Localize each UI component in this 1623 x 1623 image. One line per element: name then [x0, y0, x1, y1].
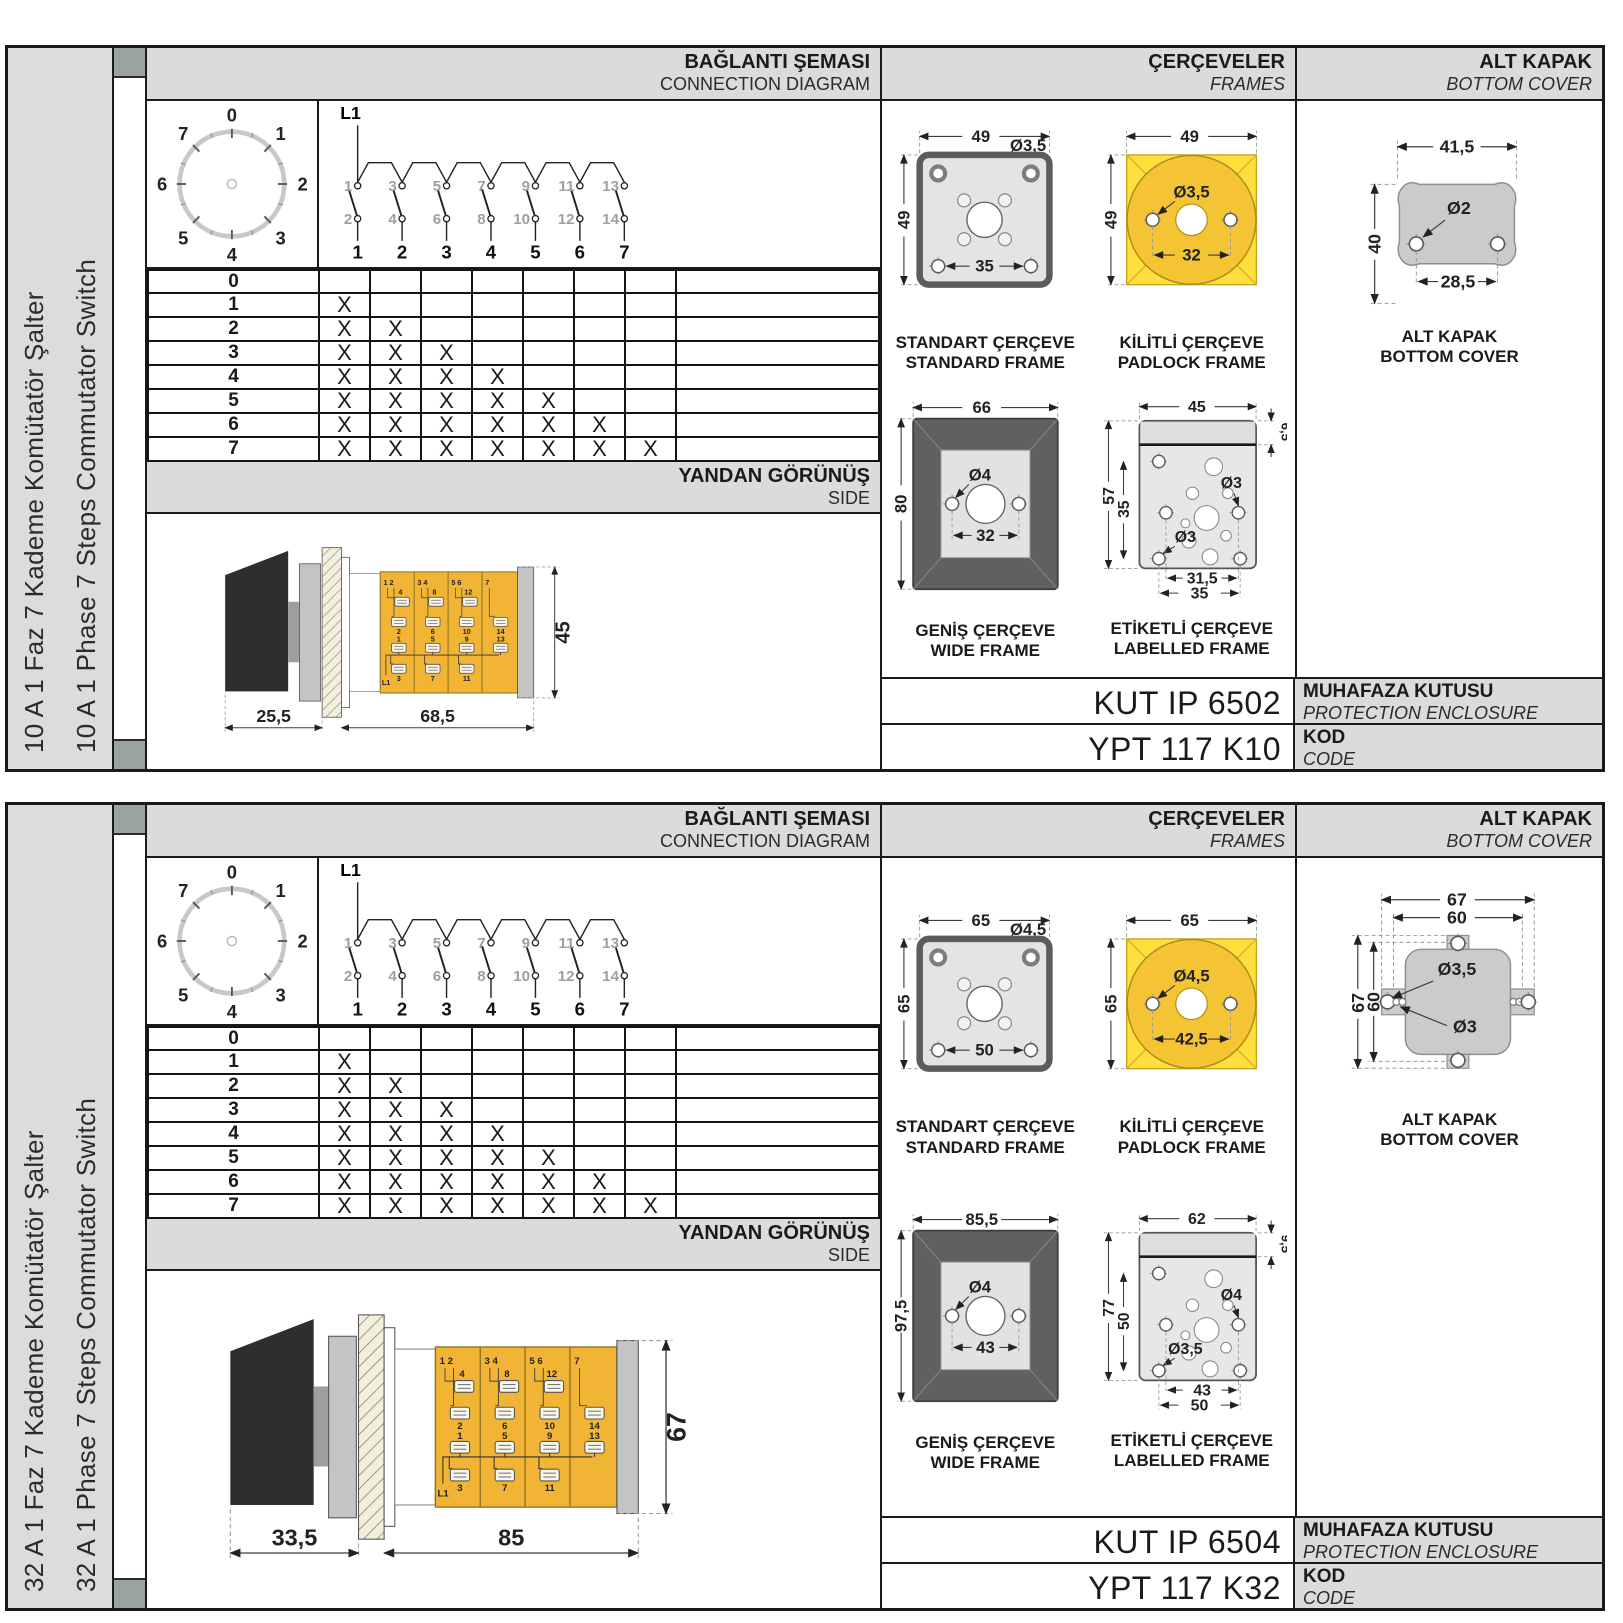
svg-text:80: 80: [892, 495, 911, 514]
dial-position-label: 4: [226, 1001, 237, 1020]
labelled-frame-figure: 62 9,5 77 50: [1097, 1201, 1287, 1474]
knob: [230, 1319, 313, 1505]
steps-table-row: 1X: [148, 293, 879, 317]
dial-position-label: 1: [275, 880, 285, 901]
binder-strip: [114, 48, 147, 769]
svg-text:6: 6: [433, 211, 441, 228]
bottom-cover-panel: ALT KAPAK BOTTOM COVER 41,5 40: [1297, 48, 1602, 677]
steps-table-row: 7XXXXXXX: [148, 1194, 879, 1218]
catalog-page: 10 A 1 Faz 7 Kademe Komütatör Şalter 10 …: [0, 0, 1623, 1611]
product-section: 32 A 1 Faz 7 Kademe Komütatör Şalter 32 …: [5, 802, 1605, 1611]
frames-header-english: FRAMES: [892, 74, 1285, 95]
wide-frame-caption: GENİŞ ÇERÇEVE WIDE FRAME: [915, 621, 1055, 662]
svg-text:11: 11: [545, 1483, 556, 1494]
dial-position-label: 1: [275, 123, 285, 144]
connection-header-turkish: BAĞLANTI ŞEMASI: [157, 51, 870, 74]
svg-text:4: 4: [486, 998, 497, 1019]
dial-position-label: 6: [157, 173, 167, 194]
svg-text:50: 50: [976, 1041, 995, 1060]
svg-text:3: 3: [441, 241, 451, 262]
right-panel: ÇERÇEVELER FRAMES 49 Ø3,5: [882, 48, 1602, 769]
product-sidebar: 10 A 1 Faz 7 Kademe Komütatör Şalter 10 …: [8, 48, 114, 769]
svg-text:3: 3: [441, 998, 451, 1019]
dial-position-label: 0: [226, 862, 236, 883]
standard-frame-svg: 65 Ø4,5 65: [890, 900, 1080, 1115]
svg-text:7: 7: [477, 178, 485, 195]
svg-text:45: 45: [1188, 399, 1206, 416]
cover-header-turkish: ALT KAPAK: [1307, 51, 1592, 74]
steps-table-row: 5XXXXX: [148, 1146, 879, 1170]
svg-text:49: 49: [895, 211, 914, 230]
svg-text:41,5: 41,5: [1439, 136, 1474, 156]
diagram-top-row: 0 1 2 3 4 5 6 7 L1: [147, 858, 880, 1026]
bottom-cover-figure: 67 60 67 60: [1297, 858, 1602, 1516]
frames-header: ÇERÇEVELER FRAMES: [882, 805, 1295, 858]
side-header-english: SIDE: [157, 1245, 870, 1266]
connection-diagram-panel: BAĞLANTI ŞEMASI CONNECTION DIAGRAM: [147, 48, 882, 769]
svg-text:14: 14: [602, 211, 619, 228]
side-header-turkish: YANDAN GÖRÜNÜŞ: [157, 465, 870, 488]
front-plate: [329, 1336, 357, 1518]
wide-frame-figure: 85,5 97,5: [890, 1201, 1080, 1474]
svg-text:1: 1: [352, 998, 362, 1019]
svg-text:1: 1: [457, 1431, 463, 1442]
dim-front: 25,5: [256, 706, 291, 726]
product-section: 10 A 1 Faz 7 Kademe Komütatör Şalter 10 …: [5, 45, 1605, 772]
svg-text:4: 4: [486, 241, 497, 262]
labelled-frame-svg: 45 6,5 57 35: [1097, 389, 1287, 617]
side-view-figure: 1 2 3 4 5 6 7 4 8 12 2 6 10 14 1 5 9: [147, 1271, 880, 1608]
dial-position-label: 2: [297, 930, 307, 951]
cover-header-english: BOTTOM COVER: [1307, 831, 1592, 852]
product-code-row: YPT 117 K32 KOD CODE: [882, 1562, 1602, 1608]
dial-position-label: 2: [297, 173, 307, 194]
svg-text:1: 1: [397, 634, 401, 643]
product-code: YPT 117 K10: [882, 725, 1295, 769]
svg-text:Ø3: Ø3: [1220, 475, 1241, 492]
frames-grid: 65 Ø4,5 65: [882, 858, 1295, 1516]
frames-header-turkish: ÇERÇEVELER: [892, 51, 1285, 74]
side-view-figure: 1 2 3 4 5 6 7 4 8 12 2 6 10 14 1 5 9: [147, 514, 880, 769]
contact-diagram-figure: L1: [319, 858, 880, 1024]
svg-text:8: 8: [504, 1369, 510, 1380]
steps-table-row: 6XXXXXX: [148, 1170, 879, 1194]
svg-text:97,5: 97,5: [892, 1299, 911, 1331]
cover-header: ALT KAPAK BOTTOM COVER: [1297, 805, 1602, 858]
svg-text:3 4: 3 4: [417, 577, 427, 586]
svg-text:5 6: 5 6: [529, 1356, 542, 1367]
wide-frame-figure: 66 80: [890, 389, 1080, 662]
contacts-svg: L1: [331, 861, 678, 1021]
bottom-cover-figure: 41,5 40 Ø2 28,5: [1297, 101, 1602, 677]
section-main: BAĞLANTI ŞEMASI CONNECTION DIAGRAM: [147, 48, 1602, 769]
steps-table: 01X2XX3XXX4XXXX5XXXXX6XXXXXX7XXXXXXX: [147, 1026, 880, 1219]
knob: [225, 550, 288, 691]
svg-text:10: 10: [513, 211, 530, 228]
svg-text:4: 4: [388, 211, 397, 228]
cover-header-english: BOTTOM COVER: [1307, 74, 1592, 95]
svg-text:6: 6: [433, 968, 441, 985]
end-cap: [617, 1340, 638, 1513]
frames-panel: ÇERÇEVELER FRAMES 65 Ø4,5: [882, 805, 1297, 1516]
padlock-frame-figure: 49 49: [1097, 116, 1287, 374]
svg-text:13: 13: [602, 178, 619, 195]
connection-header-turkish: BAĞLANTI ŞEMASI: [157, 808, 870, 831]
shaft: [384, 1328, 395, 1527]
dim-front: 33,5: [272, 1524, 318, 1550]
svg-text:13: 13: [602, 935, 619, 952]
svg-text:1: 1: [344, 935, 352, 952]
svg-text:66: 66: [973, 398, 992, 417]
product-title-turkish: 10 A 1 Faz 7 Kademe Komütatör Şalter: [8, 48, 60, 769]
dial-position-label: 0: [226, 105, 236, 126]
steps-table-row: 2XX: [148, 1074, 879, 1098]
labelled-frame-figure: 45 6,5 57 35: [1097, 389, 1287, 662]
svg-text:6,5: 6,5: [1278, 423, 1286, 441]
svg-text:50: 50: [1190, 1397, 1208, 1414]
svg-text:49: 49: [1101, 211, 1120, 230]
bottom-cover-caption: ALT KAPAK BOTTOM COVER: [1380, 1110, 1519, 1151]
steps-table: 01X2XX3XXX4XXXX5XXXXX6XXXXXX7XXXXXXX: [147, 269, 880, 462]
svg-text:9: 9: [465, 634, 469, 643]
svg-text:11: 11: [463, 673, 471, 682]
steps-table-row: 3XXX: [148, 1098, 879, 1122]
svg-text:10: 10: [513, 968, 530, 985]
svg-text:7: 7: [485, 577, 489, 586]
svg-text:65: 65: [972, 911, 991, 930]
padlock-frame-figure: 65 65: [1097, 900, 1287, 1158]
svg-text:65: 65: [1101, 995, 1120, 1014]
contact-diagram-figure: L1: [319, 101, 880, 267]
side-header-english: SIDE: [157, 488, 870, 509]
svg-text:42,5: 42,5: [1175, 1030, 1207, 1049]
output-labels: 1 2 3 4 5 6 7: [352, 998, 629, 1019]
dial-svg: 0 1 2 3 4 5 6 7: [152, 105, 313, 263]
side-view-header: YANDAN GÖRÜNÜŞ SIDE: [147, 462, 880, 515]
enclosure-code: KUT IP 6502: [882, 679, 1295, 723]
input-terminal-label: L1: [340, 861, 361, 880]
svg-text:32: 32: [976, 526, 995, 545]
standard-frame-figure: 49 Ø3,5 49: [890, 116, 1080, 374]
svg-text:8: 8: [477, 968, 485, 985]
svg-text:8: 8: [432, 587, 436, 596]
svg-text:49: 49: [1180, 127, 1199, 146]
svg-text:35: 35: [1190, 586, 1208, 603]
wide-frame-caption: GENİŞ ÇERÇEVE WIDE FRAME: [915, 1433, 1055, 1474]
svg-text:8: 8: [477, 211, 485, 228]
svg-text:13: 13: [497, 634, 505, 643]
svg-text:3: 3: [397, 673, 401, 682]
svg-text:Ø4,5: Ø4,5: [1173, 967, 1209, 986]
wide-frame-svg: 66 80: [890, 389, 1080, 619]
knob-hub: [314, 1386, 329, 1466]
steps-table-row: 7XXXXXXX: [148, 437, 879, 461]
svg-text:3 4: 3 4: [485, 1356, 499, 1367]
spacer: [350, 573, 381, 691]
svg-text:7: 7: [431, 673, 435, 682]
svg-text:1: 1: [352, 241, 362, 262]
panel-plate: [322, 547, 341, 717]
svg-text:9: 9: [522, 178, 530, 195]
svg-text:L1: L1: [438, 1488, 450, 1499]
end-cap: [518, 567, 534, 698]
bus-wire: [358, 919, 625, 939]
standard-frame-figure: 65 Ø4,5 65: [890, 900, 1080, 1158]
dial-position-label: 7: [178, 123, 188, 144]
binder-tab-bottom: [114, 739, 145, 769]
svg-text:43: 43: [976, 1338, 995, 1357]
side-view-svg: 1 2 3 4 5 6 7 4 8 12 2 6 10 14 1 5 9: [209, 525, 572, 759]
svg-text:35: 35: [976, 257, 995, 276]
product-title-english: 10 A 1 Phase 7 Steps Commutator Switch: [60, 48, 112, 769]
steps-table-row: 4XXXX: [148, 1122, 879, 1146]
connection-header-english: CONNECTION DIAGRAM: [157, 74, 870, 95]
svg-text:11: 11: [559, 935, 575, 952]
svg-text:62: 62: [1188, 1211, 1206, 1228]
svg-text:12: 12: [464, 587, 472, 596]
side-header-turkish: YANDAN GÖRÜNÜŞ: [157, 1222, 870, 1245]
svg-text:12: 12: [558, 211, 575, 228]
svg-text:7: 7: [574, 1356, 579, 1367]
svg-text:4: 4: [398, 587, 402, 596]
svg-text:13: 13: [589, 1431, 600, 1442]
dial-position-label: 7: [178, 880, 188, 901]
product-code-row: YPT 117 K10 KOD CODE: [882, 723, 1602, 769]
side-view-header: YANDAN GÖRÜNÜŞ SIDE: [147, 1219, 880, 1272]
svg-text:32: 32: [1182, 246, 1201, 265]
switch-body: 1 2 3 4 5 6 7 4 8 12 2 6 10 14 1 5 9: [435, 1347, 617, 1507]
connection-header-english: CONNECTION DIAGRAM: [157, 831, 870, 852]
svg-text:7: 7: [502, 1483, 507, 1494]
output-labels: 1 2 3 4 5 6 7: [352, 241, 629, 262]
binder-tab-top: [114, 805, 145, 835]
svg-text:65: 65: [1180, 911, 1199, 930]
steps-table-row: 3XXX: [148, 341, 879, 365]
dial-position-label: 3: [275, 227, 285, 248]
svg-text:12: 12: [546, 1369, 557, 1380]
svg-text:5: 5: [431, 634, 435, 643]
steps-table-row: 2XX: [148, 317, 879, 341]
enclosure-code-row: KUT IP 6502 MUHAFAZA KUTUSU PROTECTION E…: [882, 677, 1602, 723]
cover-header: ALT KAPAK BOTTOM COVER: [1297, 48, 1602, 101]
steps-table-row: 6XXXXXX: [148, 413, 879, 437]
svg-text:5: 5: [502, 1431, 508, 1442]
svg-text:Ø3: Ø3: [1175, 529, 1196, 546]
dim-length: 68,5: [420, 706, 455, 726]
dim-height: 45: [552, 621, 572, 643]
enclosure-code-label: MUHAFAZA KUTUSU PROTECTION ENCLOSURE: [1295, 1518, 1602, 1562]
bottom-cover-tabs-svg: 67 60 67 60: [1336, 872, 1564, 1108]
product-title-english: 32 A 1 Phase 7 Steps Commutator Switch: [60, 805, 112, 1608]
svg-text:7: 7: [619, 998, 629, 1019]
right-panel: ÇERÇEVELER FRAMES 65 Ø4,5: [882, 805, 1602, 1608]
steps-table-row: 5XXXXX: [148, 389, 879, 413]
knob-hub: [288, 601, 299, 662]
enclosure-code-row: KUT IP 6504 MUHAFAZA KUTUSU PROTECTION E…: [882, 1516, 1602, 1562]
svg-text:2: 2: [397, 241, 407, 262]
svg-text:40: 40: [1364, 234, 1384, 254]
svg-text:4: 4: [388, 968, 397, 985]
frames-grid: 49 Ø3,5 49: [882, 101, 1295, 677]
svg-text:12: 12: [558, 968, 575, 985]
product-sidebar: 32 A 1 Faz 7 Kademe Komütatör Şalter 32 …: [8, 805, 114, 1608]
cover-header-turkish: ALT KAPAK: [1307, 808, 1592, 831]
rotary-dial-figure: 0 1 2 3 4 5 6 7: [147, 101, 319, 267]
svg-text:9,5: 9,5: [1278, 1234, 1286, 1252]
svg-text:85,5: 85,5: [966, 1210, 998, 1229]
svg-text:9: 9: [522, 935, 530, 952]
svg-text:35: 35: [1116, 500, 1133, 518]
frames-header-english: FRAMES: [892, 831, 1285, 852]
spacer: [395, 1349, 436, 1505]
svg-text:7: 7: [619, 241, 629, 262]
svg-text:Ø3,5: Ø3,5: [1437, 959, 1476, 979]
wide-frame-svg: 85,5 97,5: [890, 1201, 1080, 1431]
bottom-cover-panel: ALT KAPAK BOTTOM COVER: [1297, 805, 1602, 1516]
svg-text:50: 50: [1116, 1312, 1133, 1330]
svg-text:2: 2: [397, 998, 407, 1019]
dial-position-label: 3: [275, 984, 285, 1005]
svg-text:6: 6: [575, 241, 585, 262]
labelled-frame-caption: ETİKETLİ ÇERÇEVE LABELLED FRAME: [1111, 619, 1273, 660]
frames-header-turkish: ÇERÇEVELER: [892, 808, 1285, 831]
front-plate: [299, 563, 320, 700]
svg-text:11: 11: [559, 178, 575, 195]
svg-text:5: 5: [433, 178, 441, 195]
dial-position-label: 4: [226, 244, 237, 263]
binder-strip: [114, 805, 147, 1608]
svg-text:5 6: 5 6: [451, 577, 461, 586]
svg-text:Ø4: Ø4: [969, 466, 992, 485]
steps-table-row: 4XXXX: [148, 365, 879, 389]
dim-height: 67: [661, 1412, 689, 1442]
steps-table-row: 1X: [148, 1050, 879, 1074]
svg-text:9: 9: [547, 1431, 552, 1442]
padlock-frame-svg: 65 65: [1097, 900, 1287, 1115]
bottom-cover-caption: ALT KAPAK BOTTOM COVER: [1380, 327, 1519, 368]
svg-text:Ø3: Ø3: [1452, 1016, 1476, 1036]
binder-tab-top: [114, 48, 145, 78]
svg-text:2: 2: [344, 968, 352, 985]
dial-svg: 0 1 2 3 4 5 6 7: [152, 862, 313, 1020]
svg-text:Ø3,5: Ø3,5: [1173, 183, 1209, 202]
frames-panel: ÇERÇEVELER FRAMES 49 Ø3,5: [882, 48, 1297, 677]
binder-tab-bottom: [114, 1578, 145, 1608]
product-code-label: KOD CODE: [1295, 725, 1602, 769]
svg-text:65: 65: [895, 995, 914, 1014]
connection-header: BAĞLANTI ŞEMASI CONNECTION DIAGRAM: [147, 805, 880, 858]
svg-text:60: 60: [1447, 907, 1467, 927]
svg-text:Ø2: Ø2: [1447, 198, 1471, 218]
switch-body: 1 2 3 4 5 6 7 4 8 12 2 6 10 14 1 5 9: [380, 571, 517, 692]
dial-position-label: 5: [178, 227, 188, 248]
product-code: YPT 117 K32: [882, 1564, 1295, 1608]
padlock-frame-caption: KİLİTLİ ÇERÇEVE PADLOCK FRAME: [1118, 1117, 1266, 1158]
svg-text:7: 7: [477, 935, 485, 952]
labelled-frame-caption: ETİKETLİ ÇERÇEVE LABELLED FRAME: [1111, 1431, 1273, 1472]
bus-wire: [358, 162, 625, 182]
labelled-frame-svg: 62 9,5 77 50: [1097, 1201, 1287, 1429]
panel-plate: [359, 1315, 385, 1539]
contacts-svg: L1: [331, 104, 678, 264]
svg-text:5: 5: [530, 241, 540, 262]
svg-text:5: 5: [530, 998, 540, 1019]
diagram-top-row: 0 1 2 3 4 5 6 7 L1: [147, 101, 880, 269]
enclosure-code: KUT IP 6504: [882, 1518, 1295, 1562]
rotary-dial-figure: 0 1 2 3 4 5 6 7: [147, 858, 319, 1024]
svg-text:49: 49: [972, 127, 991, 146]
bottom-cover-plain-svg: 41,5 40 Ø2 28,5: [1336, 115, 1564, 325]
svg-text:1: 1: [344, 178, 352, 195]
standard-frame-svg: 49 Ø3,5 49: [890, 116, 1080, 331]
padlock-frame-caption: KİLİTLİ ÇERÇEVE PADLOCK FRAME: [1118, 333, 1266, 374]
padlock-frame-svg: 49 49: [1097, 116, 1287, 331]
enclosure-code-label: MUHAFAZA KUTUSU PROTECTION ENCLOSURE: [1295, 679, 1602, 723]
svg-text:6: 6: [575, 998, 585, 1019]
svg-text:2: 2: [344, 211, 352, 228]
section-main: BAĞLANTI ŞEMASI CONNECTION DIAGRAM: [147, 805, 1602, 1608]
svg-text:3: 3: [388, 935, 396, 952]
dial-position-label: 6: [157, 930, 167, 951]
product-title-turkish: 32 A 1 Faz 7 Kademe Komütatör Şalter: [8, 805, 60, 1608]
product-code-label: KOD CODE: [1295, 1564, 1602, 1608]
svg-text:L1: L1: [382, 677, 390, 686]
svg-text:Ø3,5: Ø3,5: [1168, 1341, 1203, 1358]
svg-text:3: 3: [457, 1483, 462, 1494]
dial-position-label: 5: [178, 984, 188, 1005]
steps-table-row: 0: [148, 1027, 879, 1050]
svg-text:14: 14: [602, 968, 619, 985]
side-view-svg: 1 2 3 4 5 6 7 4 8 12 2 6 10 14 1 5 9: [209, 1285, 690, 1595]
svg-text:5: 5: [433, 935, 441, 952]
svg-text:1 2: 1 2: [383, 577, 393, 586]
standard-frame-caption: STANDART ÇERÇEVE STANDARD FRAME: [896, 333, 1075, 374]
svg-text:4: 4: [459, 1369, 465, 1380]
connection-header: BAĞLANTI ŞEMASI CONNECTION DIAGRAM: [147, 48, 880, 101]
svg-text:1 2: 1 2: [440, 1356, 453, 1367]
standard-frame-caption: STANDART ÇERÇEVE STANDARD FRAME: [896, 1117, 1075, 1158]
svg-text:Ø4: Ø4: [969, 1277, 992, 1296]
connection-diagram-panel: BAĞLANTI ŞEMASI CONNECTION DIAGRAM: [147, 805, 882, 1608]
svg-text:28,5: 28,5: [1440, 271, 1475, 291]
svg-text:Ø4: Ø4: [1220, 1287, 1241, 1304]
steps-table-row: 0: [148, 270, 879, 293]
frames-header: ÇERÇEVELER FRAMES: [882, 48, 1295, 101]
shaft: [341, 557, 349, 707]
svg-text:3: 3: [388, 178, 396, 195]
input-terminal-label: L1: [340, 104, 361, 123]
dim-length: 85: [498, 1524, 524, 1550]
